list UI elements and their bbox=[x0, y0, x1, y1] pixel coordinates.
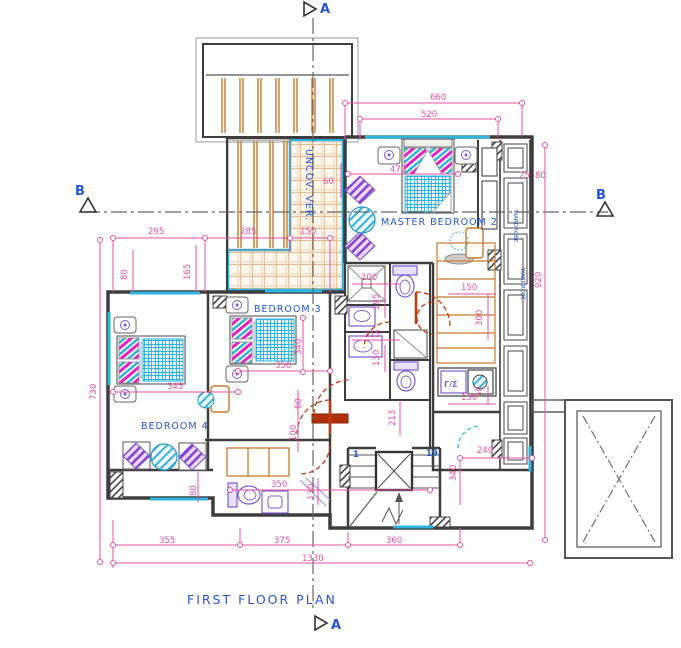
section-b-left-arrow bbox=[80, 198, 96, 212]
stairs bbox=[348, 452, 440, 526]
section-b-right-arrow bbox=[597, 202, 613, 216]
dimension-label: 60 bbox=[294, 398, 304, 409]
section-letter-a-top: A bbox=[320, 2, 330, 17]
dimension-label: 150 bbox=[461, 283, 477, 293]
round-stool bbox=[349, 207, 375, 233]
room-label: UNCOV. VER. bbox=[303, 149, 314, 221]
bedroom4-seating bbox=[123, 442, 206, 470]
dimension-label: 520 bbox=[421, 110, 437, 120]
dimension-label: 165 bbox=[183, 264, 193, 280]
dimension-label: 80 bbox=[120, 269, 130, 280]
dimension-label: 350 bbox=[275, 361, 291, 371]
toilet-1 bbox=[393, 266, 417, 297]
dimension-label: 375 bbox=[274, 536, 290, 546]
dimension-label: 295 bbox=[148, 227, 164, 237]
master-cushions bbox=[345, 176, 375, 260]
dimension-label: 340 bbox=[294, 339, 304, 355]
plan-label: WARDROBE bbox=[512, 210, 518, 243]
section-a-bottom-arrow bbox=[315, 616, 327, 630]
floor-plan-page: A A B B 6605204702 bbox=[0, 0, 681, 648]
dimension-label: 200 bbox=[361, 273, 377, 283]
dimension-label: 100 bbox=[289, 425, 299, 441]
dimension-label: 920 bbox=[534, 272, 544, 288]
toilet-3 bbox=[228, 483, 260, 507]
plan-label: Γ/Σ bbox=[444, 380, 457, 389]
dimension-label: 60 bbox=[323, 177, 334, 187]
closet-row bbox=[227, 448, 289, 476]
dimension-label: 355 bbox=[159, 536, 175, 546]
plan-label: WARDROBE bbox=[519, 268, 525, 301]
room-label: MASTER BEDROOM 2 bbox=[381, 217, 498, 228]
toilet-2 bbox=[394, 362, 418, 391]
section-letter-b-left: B bbox=[75, 184, 85, 199]
section-a-top-arrow bbox=[304, 2, 316, 16]
plan-label: 19 bbox=[426, 449, 438, 459]
room-label: BEDROOM 3 bbox=[254, 304, 322, 315]
bidet bbox=[262, 491, 288, 513]
dimension-label: 130 bbox=[307, 484, 317, 500]
floor-plan-drawing: A A B B 6605204702 bbox=[0, 0, 681, 648]
dimension-label: 340 bbox=[449, 465, 459, 481]
section-letter-b-right: B bbox=[596, 188, 606, 203]
dimension-label: 195 bbox=[372, 294, 382, 310]
dimension-label: 213 bbox=[388, 410, 398, 426]
bed-master bbox=[378, 139, 477, 213]
open-shaft bbox=[532, 400, 672, 558]
dimension-label: 730 bbox=[89, 384, 99, 400]
room-label: BEDROOM 4 bbox=[141, 421, 209, 432]
dimension-label: 80 bbox=[189, 485, 199, 496]
wardrobe-column bbox=[504, 144, 527, 464]
dimension-label: 345 bbox=[167, 382, 183, 392]
dimension-label: 150 bbox=[300, 227, 316, 237]
plan-label: 1 bbox=[353, 450, 359, 460]
dimension-label: 130 bbox=[372, 350, 382, 366]
dimension-label: 300 bbox=[475, 310, 485, 326]
dimension-label: 660 bbox=[430, 93, 446, 103]
dimension-label: 50 bbox=[475, 386, 485, 397]
dimension-label: 80 bbox=[535, 171, 546, 181]
dimension-label: 215 bbox=[364, 330, 380, 340]
section-letter-a-bottom: A bbox=[331, 618, 341, 633]
dimension-label: 350 bbox=[271, 480, 287, 490]
drawing-title: FIRST FLOOR PLAN bbox=[187, 592, 337, 607]
tiled-veranda bbox=[228, 140, 343, 290]
dimension-label: 470 bbox=[390, 165, 406, 175]
dimension-label: 1330 bbox=[302, 554, 324, 564]
dimension-label: 240 bbox=[477, 446, 493, 456]
closet-corridor bbox=[437, 243, 495, 363]
veranda-deck bbox=[196, 38, 358, 290]
dimension-label: 25 bbox=[519, 171, 530, 181]
dimension-label: 360 bbox=[386, 536, 402, 546]
dimension-label: 285 bbox=[240, 227, 256, 237]
